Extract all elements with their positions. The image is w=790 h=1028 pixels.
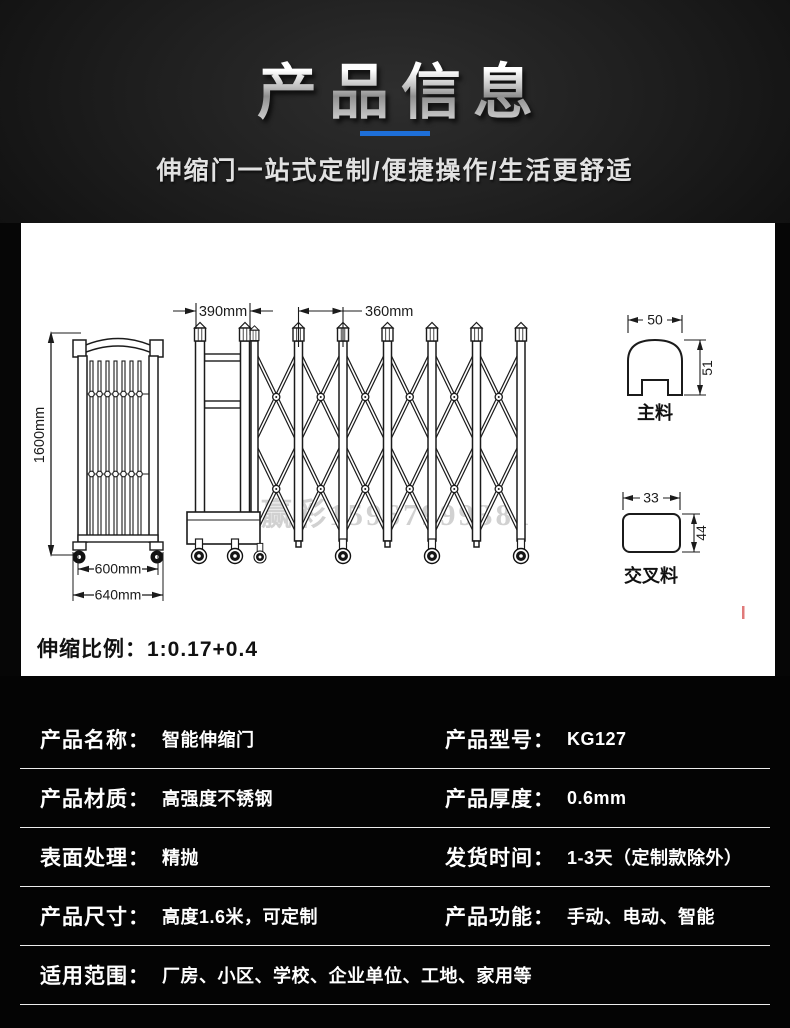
dim-inner-width-label: 600mm — [95, 561, 142, 577]
title-accent-underline — [360, 131, 430, 136]
spec-cell: 产品材质： 高强度不锈钢 — [40, 783, 445, 813]
dim-cross-width-label: 33 — [643, 490, 659, 506]
dim-outer-width-label: 640mm — [95, 587, 142, 603]
gate-technical-drawing: 赢彩15967999381 — [21, 223, 775, 676]
spec-label-function: 产品功能： — [445, 901, 567, 931]
spec-value-scope: 厂房、小区、学校、企业单位、工地、家用等 — [162, 962, 532, 988]
main-profile-label: 主料 — [637, 402, 673, 423]
spec-cell: 产品名称： 智能伸缩门 — [40, 724, 445, 754]
spec-label-material: 产品材质： — [40, 783, 162, 813]
spec-cell: 产品厚度： 0.6mm — [445, 783, 750, 813]
spec-row-name-model: 产品名称： 智能伸缩门 产品型号： KG127 — [20, 710, 770, 769]
spec-value-thickness: 0.6mm — [567, 788, 627, 809]
spec-row-material-thickness: 产品材质： 高强度不锈钢 产品厚度： 0.6mm — [20, 769, 770, 828]
dim-cross-height-label: 44 — [693, 525, 709, 541]
page-title: 产品信息 — [0, 44, 790, 131]
dim-main-width-label: 50 — [647, 312, 663, 328]
spec-value-size: 高度1.6米，可定制 — [162, 903, 318, 929]
page-subtitle: 伸缩门一站式定制/便捷操作/生活更舒适 — [0, 151, 790, 187]
scale-note: 伸缩比例：1:0.17+0.4 — [36, 637, 258, 661]
main-profile-drawing — [628, 313, 706, 396]
spec-label-delivery: 发货时间： — [445, 842, 567, 872]
spec-value-function: 手动、电动、智能 — [567, 903, 715, 929]
spec-label-size: 产品尺寸： — [40, 901, 162, 931]
spec-label-scope: 适用范围： — [40, 960, 162, 990]
dim-section-width-label: 360mm — [365, 304, 413, 320]
spec-label-model: 产品型号： — [445, 724, 567, 754]
spec-row-surface-delivery: 表面处理： 精抛 发货时间： 1-3天（定制款除外） — [20, 828, 770, 887]
spec-value-model: KG127 — [567, 729, 627, 750]
hero-header: 产品信息 伸缩门一站式定制/便捷操作/生活更舒适 — [0, 0, 790, 223]
spec-label-surface: 表面处理： — [40, 842, 162, 872]
spec-value-product-name: 智能伸缩门 — [162, 726, 255, 752]
spec-cell: 产品尺寸： 高度1.6米，可定制 — [40, 901, 445, 931]
spec-value-delivery: 1-3天（定制款除外） — [567, 844, 743, 870]
cross-profile-label: 交叉料 — [624, 565, 678, 586]
spec-cell: 产品功能： 手动、电动、智能 — [445, 901, 750, 931]
product-info-page: 产品信息 伸缩门一站式定制/便捷操作/生活更舒适 — [0, 0, 790, 1028]
spec-cell: 发货时间： 1-3天（定制款除外） — [445, 842, 750, 872]
red-mark — [742, 606, 745, 619]
spec-row-size-function: 产品尺寸： 高度1.6米，可定制 产品功能： 手动、电动、智能 — [20, 887, 770, 946]
spec-cell: 表面处理： 精抛 — [40, 842, 445, 872]
spec-label-product-name: 产品名称： — [40, 724, 162, 754]
technical-drawing-panel: 赢彩15967999381 — [21, 223, 775, 676]
dim-lead-width-label: 390mm — [199, 304, 247, 320]
spec-table: 产品名称： 智能伸缩门 产品型号： KG127 产品材质： 高强度不锈钢 产品厚… — [0, 676, 790, 1028]
spec-value-surface: 精抛 — [162, 844, 199, 870]
spec-label-thickness: 产品厚度： — [445, 783, 567, 813]
spec-row-scope: 适用范围： 厂房、小区、学校、企业单位、工地、家用等 — [20, 946, 770, 1005]
cross-profile-drawing — [623, 491, 700, 553]
dim-height-label: 1600mm — [32, 407, 48, 463]
spec-cell: 适用范围： 厂房、小区、学校、企业单位、工地、家用等 — [40, 960, 750, 990]
spec-value-material: 高强度不锈钢 — [162, 785, 273, 811]
dim-main-height-label: 51 — [699, 360, 715, 376]
spec-cell: 产品型号： KG127 — [445, 724, 750, 754]
